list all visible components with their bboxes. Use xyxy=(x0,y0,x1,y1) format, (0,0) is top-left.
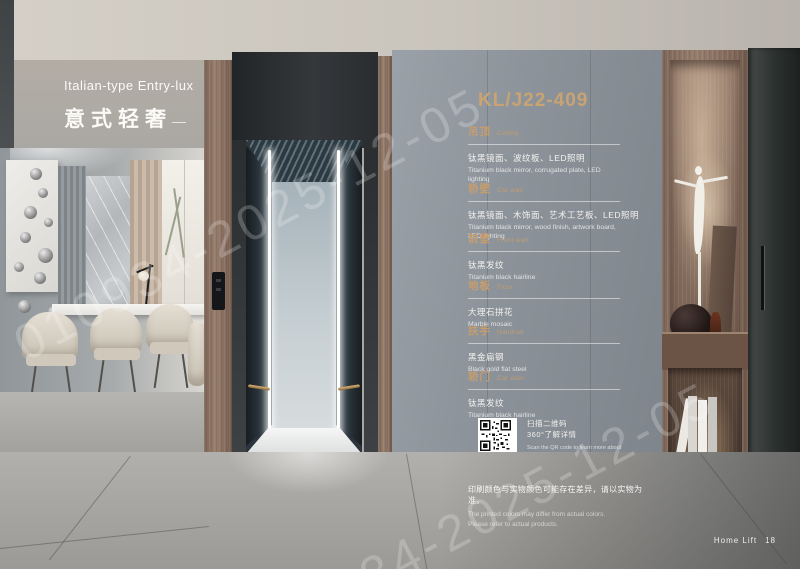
disclaimer: 印刷颜色与实物颜色可能存在差异，请以实物为准。 The printed colo… xyxy=(468,484,643,530)
glass-door xyxy=(748,48,800,506)
spec-section-front-wall: 前壁Front wall 钛黑发纹 Titanium black hairlin… xyxy=(468,231,644,282)
car-back-wall xyxy=(270,148,338,448)
footer-page-number: 18 xyxy=(765,536,776,545)
marble-feature-wall xyxy=(86,176,132,310)
table-lamp-shade xyxy=(138,271,149,281)
spec-section-ceiling: 吊顶Ceiling 钛黑镜面、波纹板、LED照明 Titanium black … xyxy=(468,124,644,184)
door-handle xyxy=(761,246,764,310)
gray-panel xyxy=(58,166,86,310)
qr-cta-zh: 扫描二维码360°了解详情 xyxy=(527,418,623,441)
book xyxy=(708,397,717,454)
spec-section-car-door: 轿门Car door 钛黑发纹 Titanium black hairline xyxy=(468,369,644,420)
page-footer: Home Lift18 xyxy=(714,536,776,545)
spec-panel: KL/J22-409 吊顶Ceiling 钛黑镜面、波纹板、LED照明 Tita… xyxy=(392,50,662,462)
book-shelf xyxy=(668,368,742,456)
led-strip-left xyxy=(268,150,271,446)
window-mullion xyxy=(184,160,185,310)
book xyxy=(688,396,697,454)
model-number: KL/J22-409 xyxy=(478,90,588,112)
footer-brand: Home Lift xyxy=(714,536,757,545)
display-niche xyxy=(662,50,748,462)
door-jamb-left xyxy=(232,140,246,458)
dining-chair xyxy=(22,312,78,360)
wood-pilaster-left xyxy=(204,60,232,458)
wall-knob xyxy=(18,300,31,313)
elevator-light-pool xyxy=(226,452,390,494)
elevator-call-panel xyxy=(212,272,225,310)
room-floor xyxy=(0,392,206,458)
page-title-zh: 意式轻奢— xyxy=(64,103,194,133)
decor-knob-panel xyxy=(6,160,58,292)
niche-interior xyxy=(670,60,740,332)
elevator-car-interior xyxy=(246,140,362,454)
book xyxy=(698,400,707,454)
cabinet-drawer xyxy=(662,332,748,370)
tiled-floor xyxy=(0,452,800,569)
door-jamb-right xyxy=(364,140,378,458)
spec-section-handrail: 扶手Handrail 黑金扁钢 Black gold flat steel xyxy=(468,323,644,374)
elevator-lintel xyxy=(232,52,378,148)
spec-section-floor: 地板Floor 大理石拼花 Marble mosaic xyxy=(468,278,644,329)
wood-pilaster-right xyxy=(378,56,392,458)
sculpture xyxy=(695,166,702,175)
page-title: Italian-type Entry-lux 意式轻奢— xyxy=(64,78,194,133)
page-title-en: Italian-type Entry-lux xyxy=(64,78,194,93)
catalog-page: KL/J22-409 吊顶Ceiling 钛黑镜面、波纹板、LED照明 Tita… xyxy=(0,0,800,569)
led-strip-right xyxy=(337,150,340,446)
